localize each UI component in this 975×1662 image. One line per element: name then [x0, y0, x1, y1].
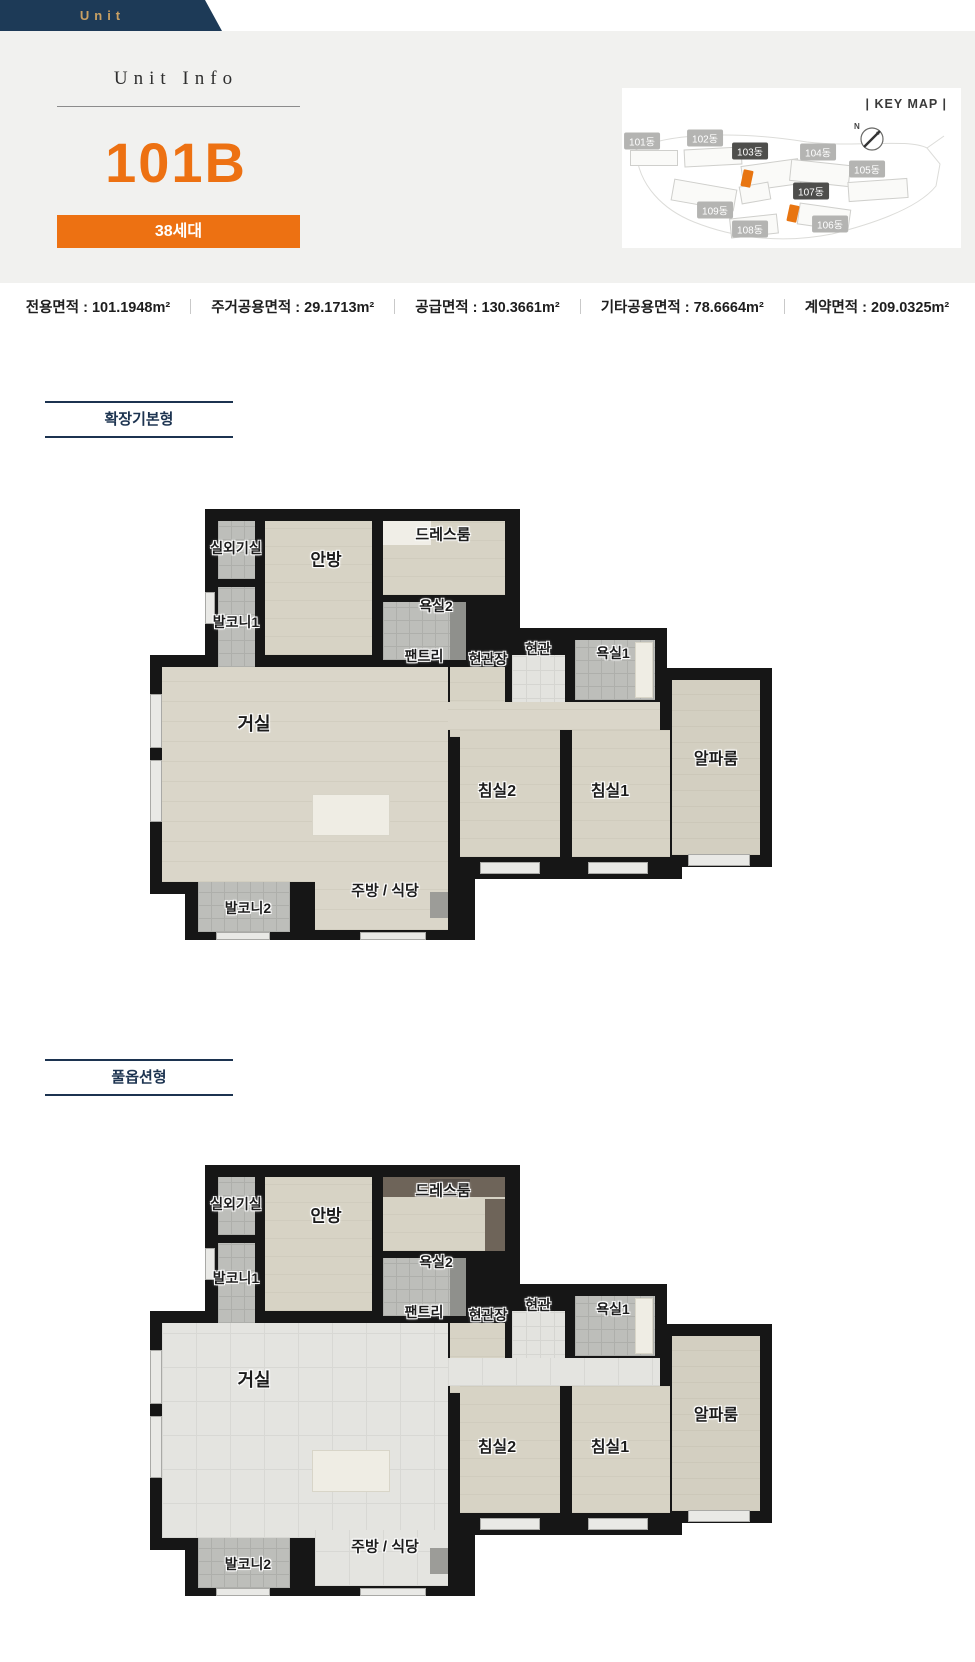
room-label-balcony1: 발코니1	[213, 1268, 259, 1288]
living-room-floor	[162, 667, 448, 882]
master-bedroom-floor	[265, 521, 372, 655]
room-label-master-bedroom: 안방	[310, 546, 341, 571]
window-sill	[150, 760, 162, 822]
area-item-2: 주거공용면적 : 29.1713m²	[211, 296, 374, 317]
room-label-entry-closet: 현관장	[469, 649, 508, 669]
building-badge: 107동	[793, 183, 829, 200]
area-separator	[784, 299, 785, 314]
building-badge: 106동	[812, 216, 848, 233]
unit-info-heading: Unit Info	[45, 68, 307, 90]
building-badge: 101동	[624, 133, 660, 150]
room-label-dress-room: 드레스룸	[415, 1180, 470, 1201]
room-label-pantry: 팬트리	[405, 1302, 444, 1322]
area-separator	[394, 299, 395, 314]
building-badge: 103동	[732, 143, 768, 160]
compass-icon: N	[852, 120, 886, 154]
window-sill	[480, 862, 540, 874]
room-label-entry-closet: 현관장	[469, 1305, 508, 1325]
window-sill	[216, 1588, 270, 1596]
building-badge: 102동	[687, 130, 723, 147]
tab-unit-label: Unit	[0, 0, 205, 31]
building-badge: 104동	[800, 144, 836, 161]
room-label-kitchen-dining: 주방 / 식당	[351, 880, 419, 901]
room-label-outdoor-unit: 실외기실	[210, 538, 262, 558]
room-label-bedroom1: 침실1	[591, 1433, 629, 1457]
area-item-5: 계약면적 : 209.0325m²	[805, 296, 949, 317]
bath1-tub	[635, 642, 653, 698]
room-label-alpha-room: 알파룸	[694, 745, 738, 769]
room-label-entry: 현관	[525, 639, 551, 659]
living-room-floor	[162, 1323, 448, 1538]
area-info-row: 전용면적 : 101.1948m²주거공용면적 : 29.1713m²공급면적 …	[0, 283, 975, 329]
heading-underline	[57, 106, 300, 107]
room-label-outdoor-unit: 실외기실	[210, 1194, 262, 1214]
corridor-floor	[448, 1358, 660, 1386]
dress-room-wardrobe	[485, 1199, 505, 1251]
corridor-floor	[448, 702, 660, 730]
window-sill	[150, 1416, 162, 1478]
window-sill	[688, 1510, 750, 1522]
window-sill	[216, 932, 270, 940]
window-sill	[588, 862, 648, 874]
room-label-kitchen-dining: 주방 / 식당	[351, 1536, 419, 1557]
floor-plan-basic: 실외기실발코니1안방드레스룸욕실2팬트리현관장현관욕실1거실침실2침실1알파룸발…	[130, 462, 780, 942]
room-label-bath2: 욕실2	[419, 1252, 453, 1272]
window-sill	[480, 1518, 540, 1530]
building-badge: 109동	[697, 202, 733, 219]
window-sill	[150, 694, 162, 748]
area-item-3: 공급면적 : 130.3661m²	[415, 296, 559, 317]
kitchen-counter	[312, 1450, 390, 1492]
kitchen-appliance	[430, 892, 448, 918]
building-outline	[630, 150, 678, 166]
room-label-bath1: 욕실1	[596, 643, 630, 663]
area-separator	[580, 299, 581, 314]
svg-text:N: N	[854, 122, 860, 131]
room-label-bedroom1: 침실1	[591, 777, 629, 801]
room-label-bath1: 욕실1	[596, 1299, 630, 1319]
section-label-full: 풀옵션형	[45, 1059, 233, 1096]
window-sill	[588, 1518, 648, 1530]
section-label-basic: 확장기본형	[45, 401, 233, 438]
building-badge: 108동	[732, 221, 768, 238]
window-sill	[360, 932, 426, 940]
room-label-bedroom2: 침실2	[478, 777, 516, 801]
window-sill	[360, 1588, 426, 1596]
households-badge: 38세대	[57, 215, 300, 248]
kitchen-counter	[312, 794, 390, 836]
unit-info-page: Unit Unit Info 101B 38세대 | KEY MAP | N 1…	[0, 0, 975, 1662]
unit-code: 101B	[45, 130, 307, 195]
key-map-card: | KEY MAP | N 101동102동103동104동105동107동10…	[622, 88, 961, 248]
room-label-bath2: 욕실2	[419, 596, 453, 616]
key-map-title: | KEY MAP |	[866, 97, 947, 111]
area-separator	[190, 299, 191, 314]
room-label-alpha-room: 알파룸	[694, 1401, 738, 1425]
room-label-living-room: 거실	[237, 1366, 270, 1392]
room-label-balcony2: 발코니2	[225, 1554, 271, 1574]
building-badge: 105동	[849, 161, 885, 178]
bath1-tub	[635, 1298, 653, 1354]
room-label-balcony2: 발코니2	[225, 898, 271, 918]
room-label-pantry: 팬트리	[405, 646, 444, 666]
window-sill	[688, 854, 750, 866]
room-label-living-room: 거실	[237, 710, 270, 736]
area-item-4: 기타공용면적 : 78.6664m²	[601, 296, 764, 317]
tab-unit[interactable]: Unit	[0, 0, 222, 31]
room-label-entry: 현관	[525, 1295, 551, 1315]
building-outline	[847, 178, 908, 202]
window-sill	[150, 1350, 162, 1404]
master-bedroom-floor	[265, 1177, 372, 1311]
kitchen-appliance	[430, 1548, 448, 1574]
room-label-bedroom2: 침실2	[478, 1433, 516, 1457]
room-label-master-bedroom: 안방	[310, 1202, 341, 1227]
area-item-1: 전용면적 : 101.1948m²	[26, 296, 170, 317]
room-label-dress-room: 드레스룸	[415, 524, 470, 545]
room-label-balcony1: 발코니1	[213, 612, 259, 632]
floor-plan-full: 실외기실발코니1안방드레스룸욕실2팬트리현관장현관욕실1거실침실2침실1알파룸발…	[130, 1118, 780, 1598]
